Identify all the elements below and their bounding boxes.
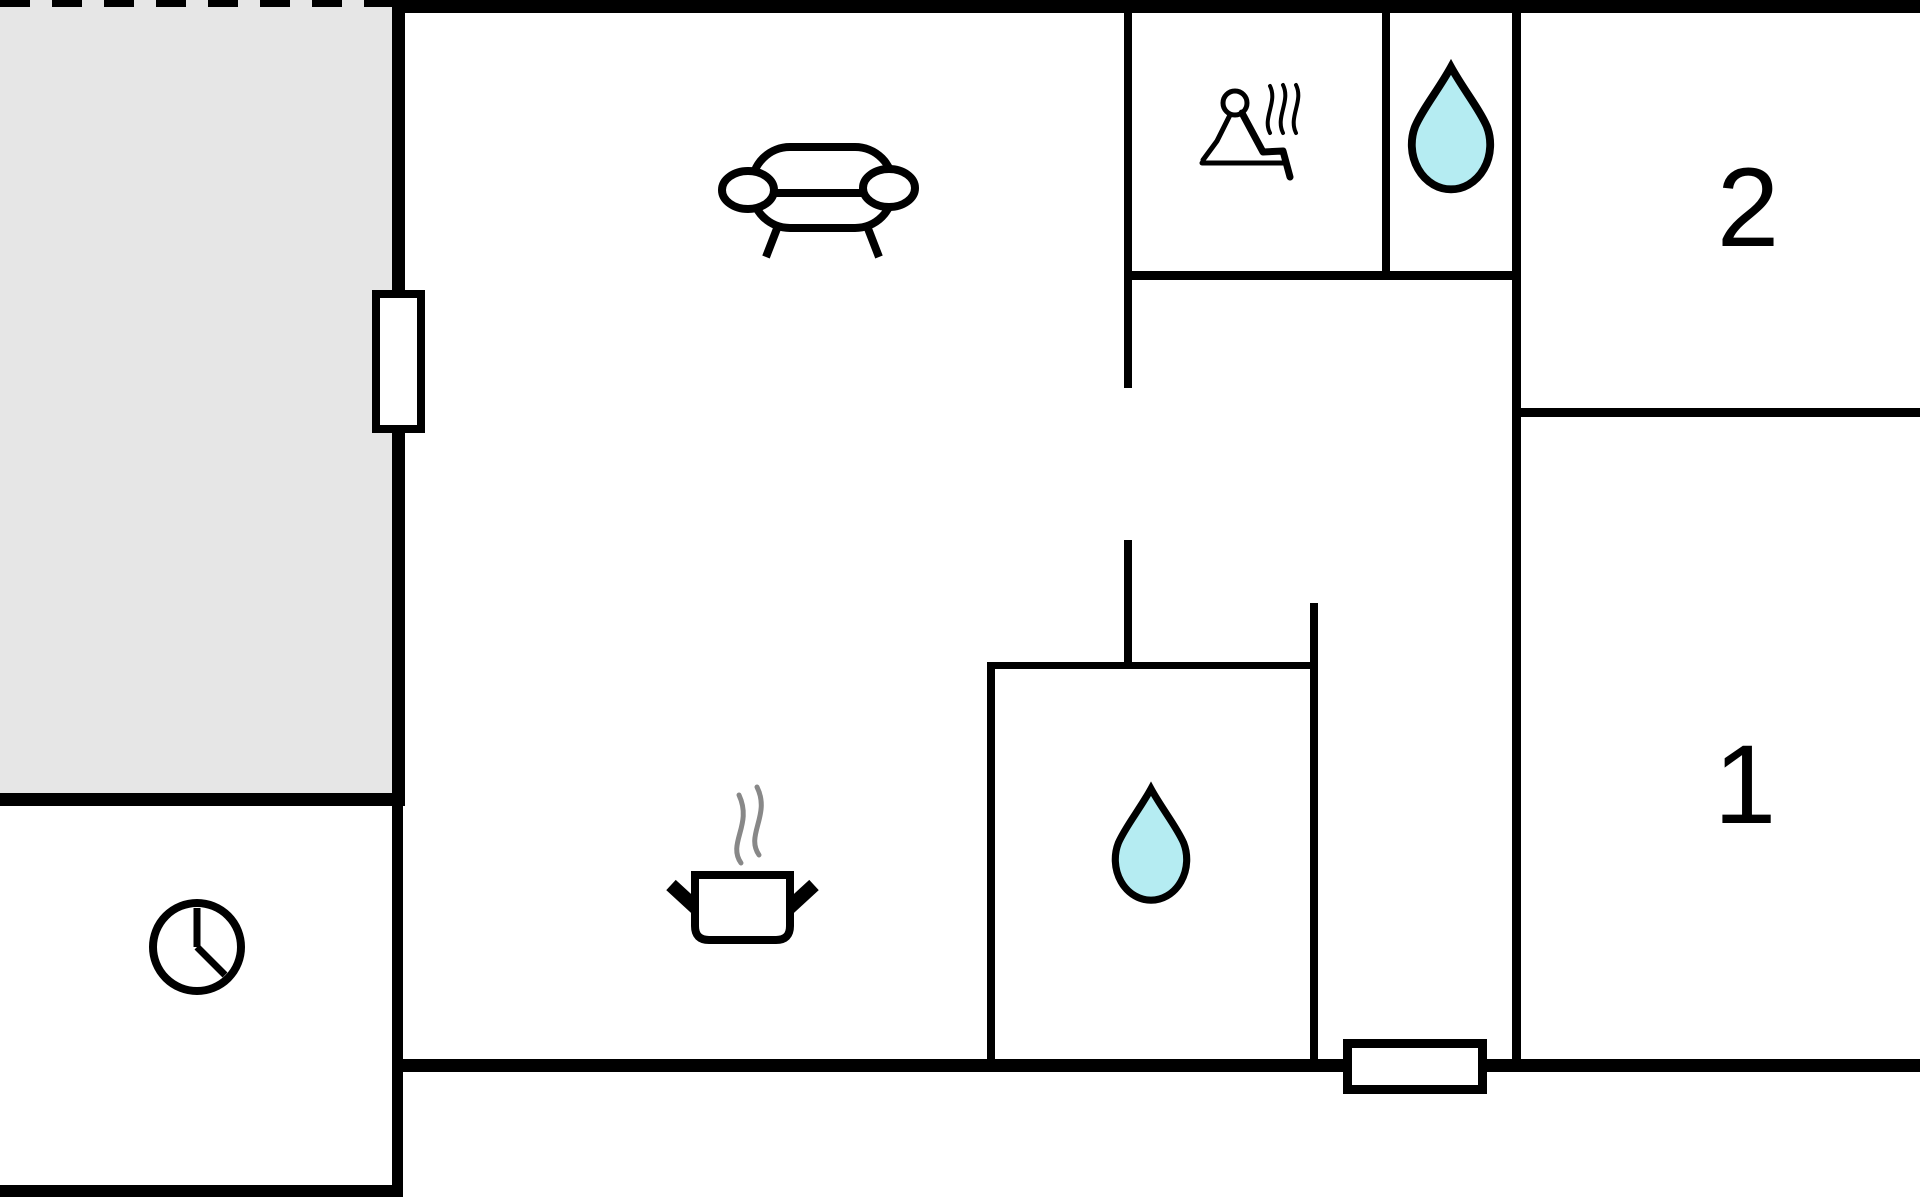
- sofa-leg-left: [766, 226, 778, 257]
- floor-plan-canvas: 2 1: [0, 0, 1920, 1200]
- room-label-bedroom-2: 2: [1717, 145, 1779, 270]
- window-left: [372, 290, 425, 433]
- sofa-armrest-right: [863, 169, 915, 207]
- utility-room-wall-bottom: [0, 1185, 403, 1197]
- hallway-partition: [1124, 540, 1132, 668]
- entry-door: [1343, 1039, 1487, 1094]
- bedrooms-divider-wall: [1512, 408, 1920, 417]
- door-leaf: [1352, 1048, 1478, 1085]
- window-glass: [380, 298, 417, 425]
- wall-terrace-bottom: [0, 793, 405, 806]
- steam-line: [737, 795, 744, 863]
- utility-room-wall-right: [392, 806, 403, 1197]
- sauna-wall-left: [1124, 13, 1132, 388]
- floor-plan: 2 1: [0, 0, 1920, 1200]
- room-label-bedroom-1: 1: [1714, 722, 1776, 847]
- sauna-steam-line: [1294, 85, 1299, 133]
- water-drop-icon: [1115, 789, 1186, 900]
- bathroom-wall-left: [987, 662, 995, 1059]
- sofa-armrest-left: [722, 171, 774, 209]
- sauna-wall-bottom: [1124, 271, 1520, 280]
- wall-top: [392, 0, 1920, 13]
- bedrooms-wall-left: [1512, 13, 1521, 1059]
- wall-bottom: [392, 1059, 1920, 1072]
- stove-pot-icon: [671, 787, 814, 940]
- sauna-person-icon: [1202, 85, 1298, 177]
- terrace-area: [0, 0, 392, 793]
- sofa-leg-right: [867, 226, 879, 257]
- bathroom-wall-right: [1310, 603, 1318, 1059]
- wall-clock-icon: [153, 903, 241, 991]
- water-drop-shape: [1412, 67, 1490, 189]
- sauna-steam-line: [1281, 85, 1286, 133]
- water-drop-icon: [1412, 67, 1490, 189]
- sofa-icon: [722, 147, 915, 257]
- pot-body: [695, 875, 790, 940]
- sauna-steam-line: [1268, 86, 1273, 133]
- bathroom-wall-top: [987, 662, 1318, 669]
- steam-line: [755, 787, 762, 855]
- water-drop-shape: [1115, 789, 1186, 900]
- sauna-person-arm: [1203, 115, 1230, 160]
- sauna-wc-divider: [1382, 13, 1390, 280]
